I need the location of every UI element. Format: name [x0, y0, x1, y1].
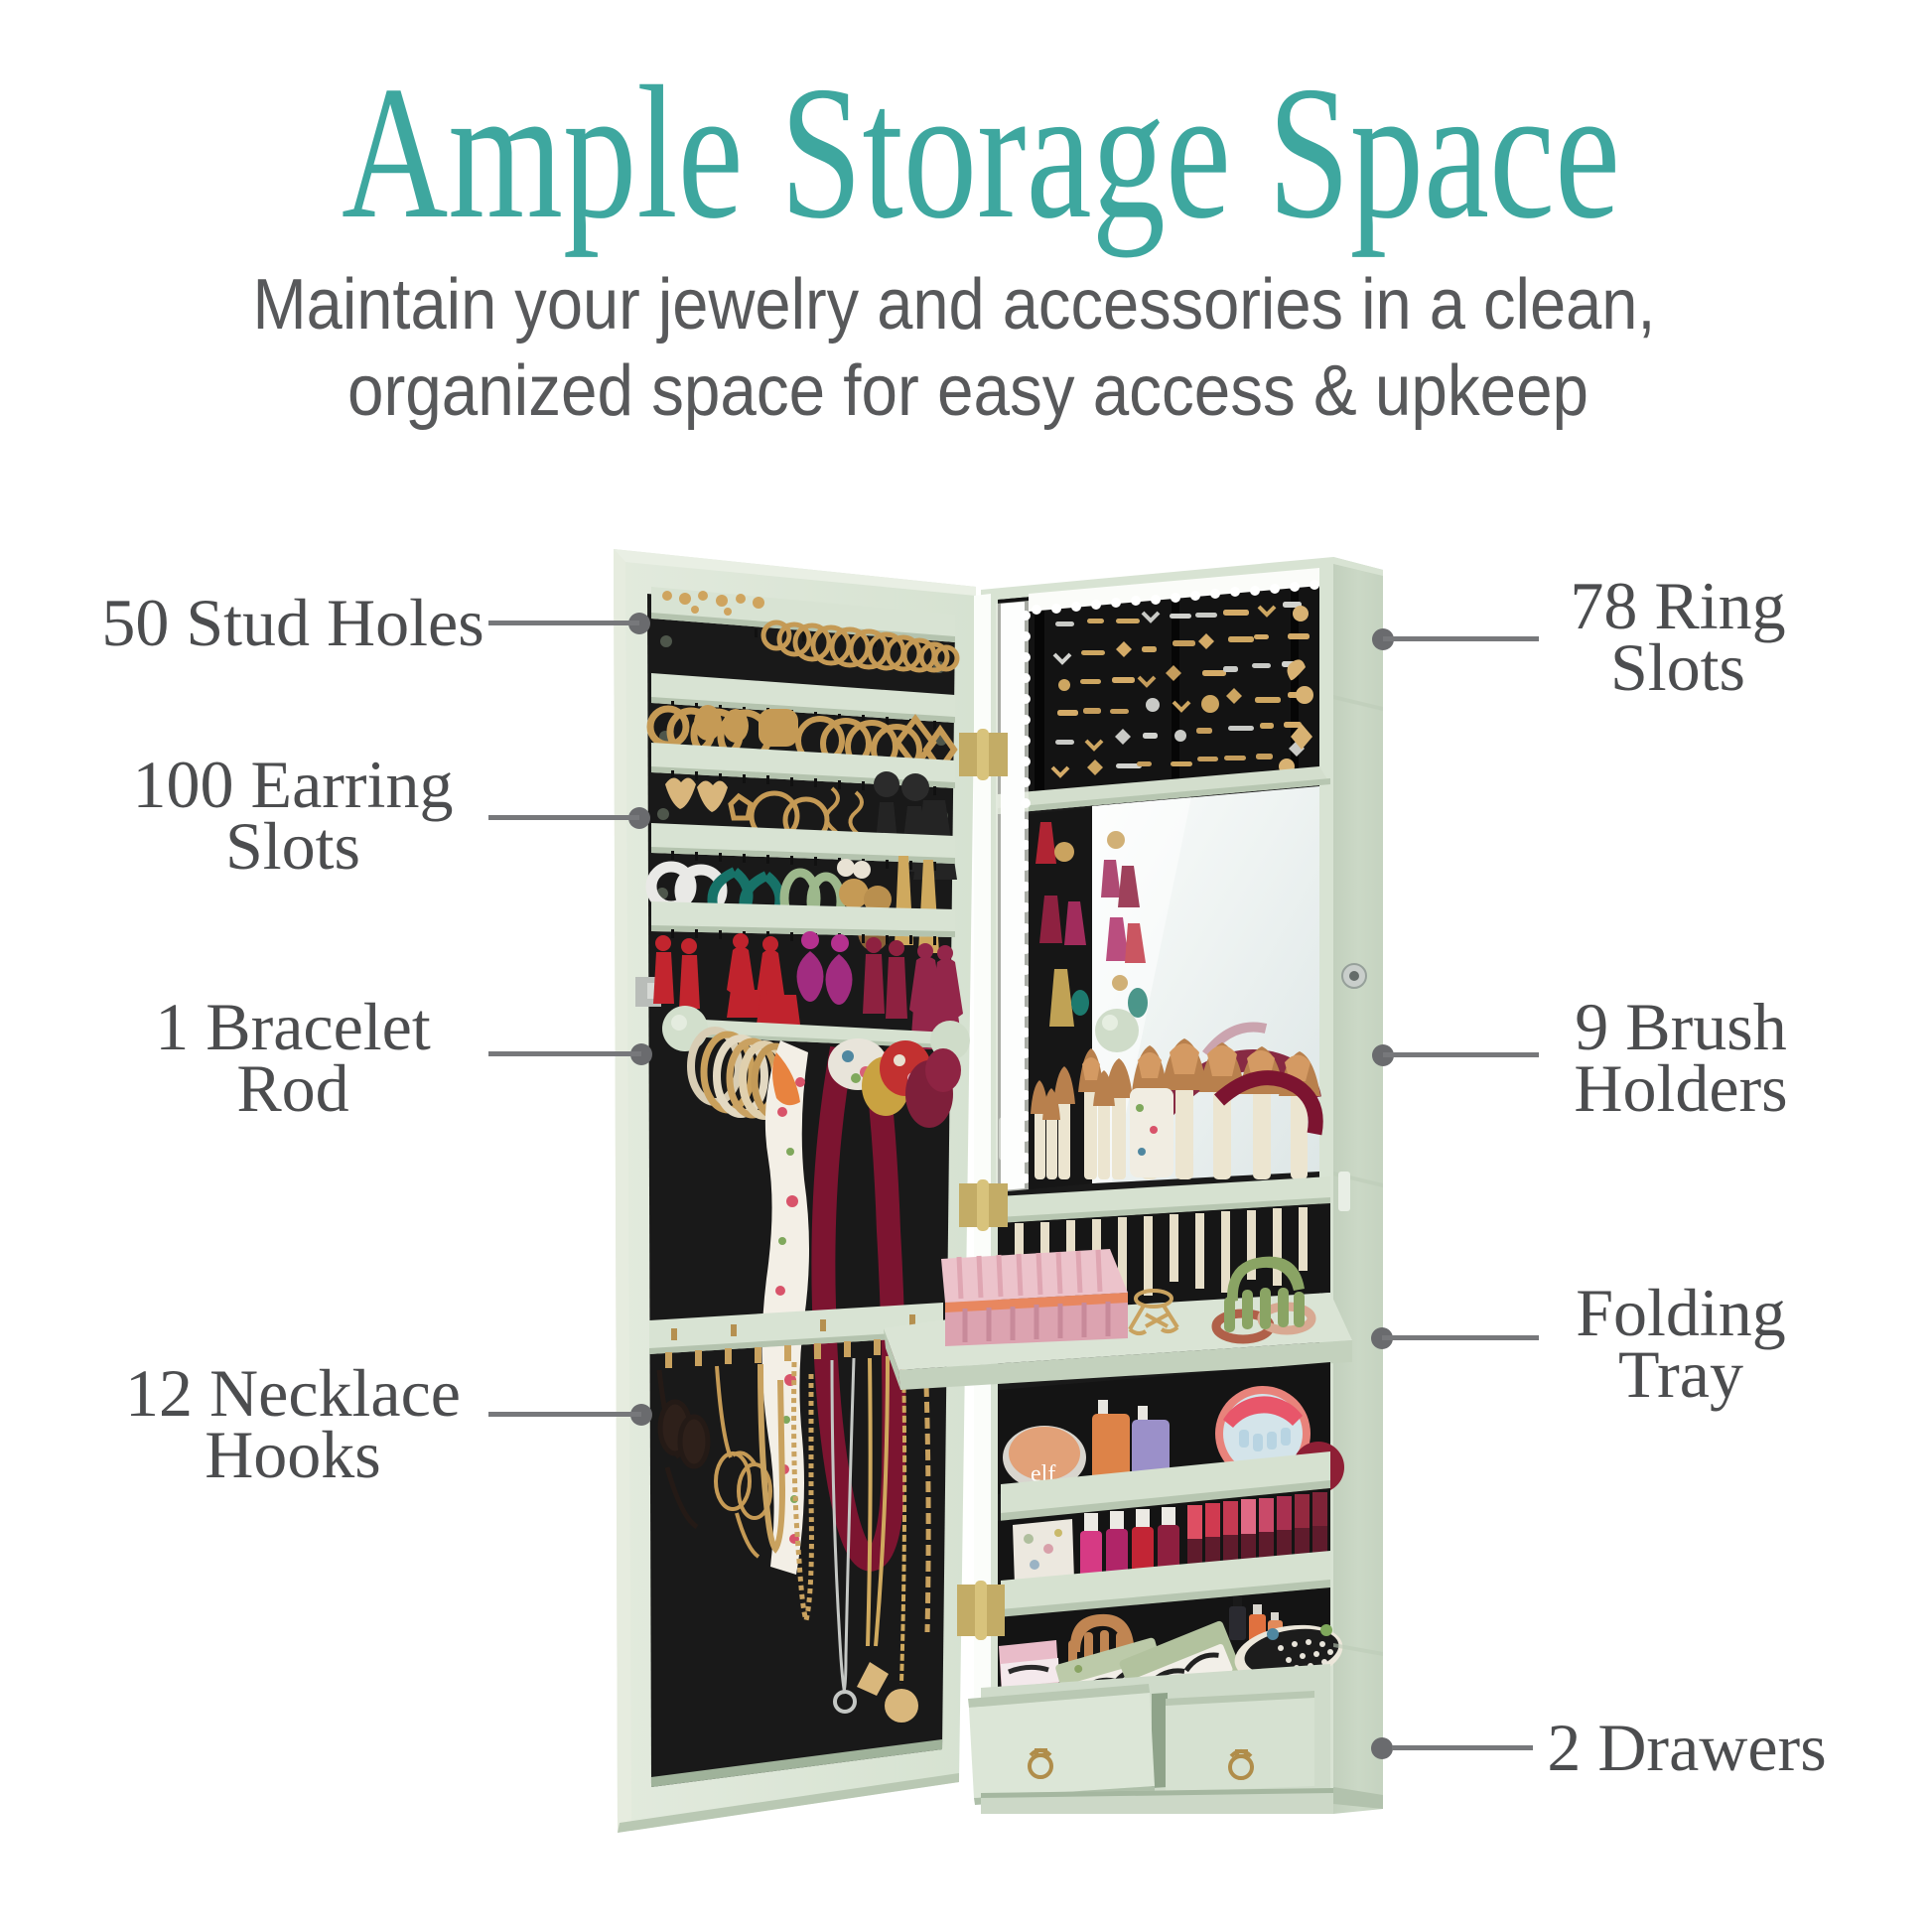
svg-text:Holders: Holders — [1574, 1050, 1787, 1126]
svg-text:Tray: Tray — [1618, 1336, 1743, 1412]
svg-text:Slots: Slots — [1610, 629, 1745, 705]
svg-text:2 Drawers: 2 Drawers — [1547, 1710, 1826, 1785]
svg-text:Maintain your jewelry and acce: Maintain your jewelry and accessories in… — [253, 265, 1656, 345]
svg-text:organized space for easy acces: organized space for easy access & upkeep — [347, 351, 1588, 431]
svg-text:Slots: Slots — [225, 808, 360, 884]
svg-text:Hooks: Hooks — [205, 1417, 381, 1492]
svg-text:Ample Storage Space: Ample Storage Space — [342, 47, 1620, 258]
svg-text:50 Stud Holes: 50 Stud Holes — [101, 585, 483, 660]
svg-text:Rod: Rod — [236, 1050, 348, 1126]
